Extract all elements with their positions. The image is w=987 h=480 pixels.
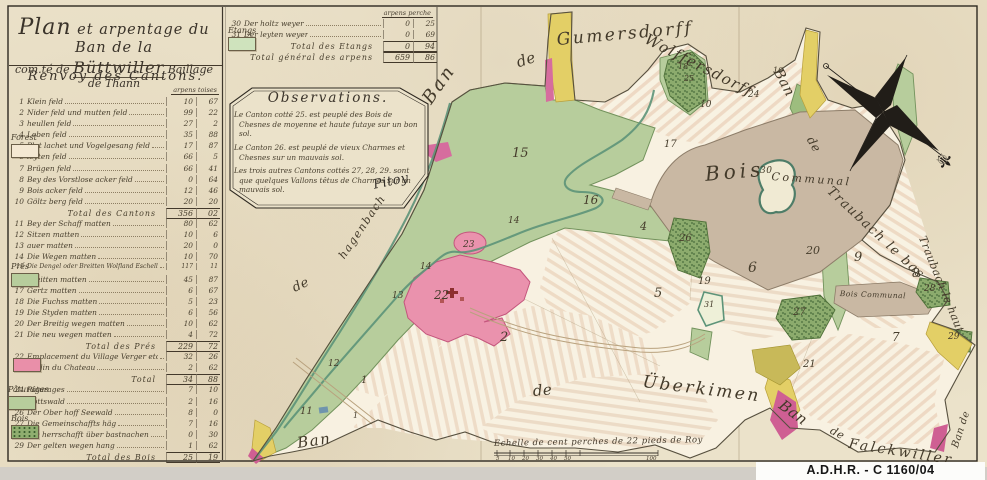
canton-number: 10 [9,197,24,206]
parcel-number: 21 [803,359,816,370]
etang-label: Total des Etangs [291,42,373,51]
canton-arpens: 4 [166,330,196,339]
canton-number: 7 [9,164,24,173]
leader-dots [113,225,164,226]
parcel-number: 22 [434,288,449,302]
scale-tick-label: 10 [508,456,515,462]
scale-tick-label: 20 [522,456,529,462]
canton-toises: 62 [196,219,220,228]
canton-arpens: 7 [166,419,196,428]
canton-label: Sitzen matten [27,230,79,239]
parcel-number: 16 [583,193,598,207]
leader-dots [98,258,164,259]
divider [9,65,222,66]
scale-tick-label: 100 [646,456,657,462]
canton-row: 21 Die neu wegen matten 4 72 [9,330,220,341]
canton-arpens: 356 [166,208,196,219]
canton-toises: 0 [196,241,220,250]
canton-row: 13 auer matten 20 0 [9,241,220,252]
canton-label: heullen feld [27,119,71,128]
canton-label: Die Styden matten [27,308,97,317]
canton-row: 19 Die Styden matten 6 56 [9,308,220,319]
parcel-number: 15 [512,146,529,161]
leader-dots [67,403,164,404]
leader-dots [73,170,164,171]
parcel-number: 9 [854,250,862,265]
canton-arpens: 229 [166,341,196,352]
category-item: Prés [11,262,39,287]
canton-row: 8 Bey des Vorstlose acker feld 0 64 [9,175,220,186]
canton-row: 4 Leben feld 35 88 [9,130,220,141]
canton-arpens: 0 [166,175,196,184]
canton-toises: 30 [196,430,220,439]
canton-arpens: 2 [166,397,196,406]
canton-toises: 5 [196,152,220,161]
canton-row: 17 Gertz matten 6 67 [9,286,220,297]
canton-row: 14 Die Wegen matten 10 70 [9,252,220,263]
canton-toises: 56 [196,308,220,317]
canton-number: 14 [9,252,24,261]
parcel-number: 27 [793,307,806,318]
color-swatch [11,144,39,158]
leader-dots [79,292,164,293]
map-label: de [532,380,553,400]
canton-number: 12 [9,230,24,239]
canton-arpens: 80 [166,219,196,228]
parcel-number: 10 [773,66,783,75]
canton-label: Total des Cantons [68,209,156,218]
scale-tick-label: 5 [496,456,500,462]
leader-dots [85,192,164,193]
canton-toises: 62 [196,363,220,372]
parcel-number: 20 [806,244,820,257]
canton-arpens: 117 [166,263,196,270]
observation-paragraph: Le Canton 26. est peuplé de vieux Charme… [234,143,422,162]
etang-number: 30 [226,19,241,28]
etang-row: 31 Der leyten weyer 0 69 [226,30,437,41]
canton-arpens: 10 [166,230,196,239]
scale-tick-label: 40 [550,456,557,462]
etang-perches: 69 [413,30,437,39]
canton-row: 18 Die Fuchss matten 5 23 [9,297,220,308]
canton-row: 28 Die herrschafft über bastnachen 0 30 [9,430,220,441]
canton-label: Brügen feld [27,164,71,173]
leader-dots [97,369,164,370]
canton-number: 2 [9,108,24,117]
etang-label: Der holtz weyer [244,19,304,28]
canton-arpens: 12 [166,186,196,195]
canton-toises: 88 [196,130,220,139]
category-item: Pâturages [8,385,49,410]
fleur-de-lis-icon: ⚜ [927,144,959,175]
etang-number: 31 [226,30,241,39]
leader-dots [127,325,164,326]
canton-arpens: 5 [166,297,196,306]
canton-label: Bey der Schaff matten [27,219,111,228]
category-item: Bois [11,414,39,439]
parcel-number: 13 [392,291,403,301]
canton-toises: 87 [196,141,220,150]
canton-row: 10 Göltz berg feld 20 20 [9,197,220,208]
canton-arpens: 32 [166,352,196,361]
canton-arpens: 1 [166,441,196,450]
canton-arpens: 8 [166,408,196,417]
canton-number: 18 [9,297,24,306]
etang-arpens: 0 [383,30,413,39]
parcel-number: 18 [678,62,688,71]
canton-toises: 67 [196,97,220,106]
canton-arpens: 45 [166,275,196,284]
color-swatch [11,425,39,439]
canton-label: Die Fuchss matten [27,297,97,306]
etang-perches: 94 [413,41,437,52]
leader-dots [151,436,164,437]
canton-number: 9 [9,186,24,195]
canton-label: Der Breitig wegen matten [27,319,125,328]
parcel-number: 8 [912,266,920,280]
canton-number: 19 [9,308,24,317]
canton-toises: 16 [196,419,220,428]
map-label: Bois [704,157,765,186]
leader-dots [81,236,164,237]
canton-number: 3 [9,119,24,128]
category-item: Forest [11,133,39,158]
parcel-number: 24 [748,90,759,100]
category-label: Forest [11,133,37,142]
canton-label: Nider feld und mutten feld [27,108,127,117]
title-initial: Plan [18,15,71,40]
parcel-number: 26 [679,233,692,244]
leader-dots [85,203,164,204]
canton-row: Total des Cantons 356 02 [9,208,220,219]
leader-dots [135,181,164,182]
parcel-number: 12 [328,359,339,369]
parcel-number: 1 [361,375,367,386]
canton-arpens: 27 [166,119,196,128]
map-label: 30 [760,166,772,176]
canton-toises: 11 [196,263,220,270]
canton-arpens: 6 [166,286,196,295]
parcel-number: 11 [300,406,313,417]
parcel-number: 14 [508,216,519,226]
canton-number: 1 [9,97,24,106]
etang-perches: 86 [413,52,437,63]
leader-dots [306,25,381,26]
leader-dots [117,447,164,448]
canton-toises: 72 [196,341,220,352]
etang-label: Der leyten weyer [244,30,308,39]
parchment-sheet: ⚜ Plan et arpentage du Ban de la com.té … [0,0,987,467]
parcel-number: 19 [698,276,711,287]
canton-arpens: 25 [166,452,196,463]
etangs-table: arpens perche 30 Der holtz weyer 0 25 31… [226,9,437,63]
canton-number: 20 [9,319,24,328]
leader-dots [160,267,164,268]
canton-label: auer matten [27,241,73,250]
category-label: Prés [11,262,29,271]
small-pond-mark [319,406,329,413]
canton-number: 8 [9,175,24,184]
canton-toises: 62 [196,319,220,328]
parcel-number: 7 [892,330,900,344]
observation-paragraph: Le Canton cotté 25. est peuplé des Bois … [234,110,422,139]
canton-toises: 2 [196,119,220,128]
scale-bar [494,450,658,456]
canton-label: Die Dengel oder Breitten Wolfland Eschel… [27,263,158,270]
etangs-column-header: arpens perche [382,9,433,18]
leader-dots [160,358,164,359]
parcel-number: 5 [654,286,662,301]
canton-row: Total 34 88 [9,374,220,385]
renvoy-heading: Renvoy des Cantons. [9,69,222,84]
canton-toises: 10 [196,385,220,394]
etang-row: 30 Der holtz weyer 0 25 [226,19,437,30]
canton-toises: 16 [196,397,220,406]
canton-row: 1 Klein feld 10 67 [9,97,220,108]
category-label: Bois [11,414,28,423]
etang-label: Total général des arpens [250,53,373,62]
canton-toises: 23 [196,297,220,306]
canton-row: 20 Der Breitig wegen matten 10 62 [9,319,220,330]
canton-toises: 87 [196,275,220,284]
parcel-number: 17 [664,139,677,150]
parcel-number: 2 [500,330,508,345]
canton-toises: 88 [196,374,220,385]
leader-dots [67,391,164,392]
etang-arpens: 659 [383,52,413,63]
canton-toises: 62 [196,441,220,450]
canton-toises: 6 [196,230,220,239]
etangs-rows: 30 Der holtz weyer 0 25 31 Der leyten we… [226,19,437,63]
canton-number: 21 [9,330,24,339]
canton-toises: 20 [196,197,220,206]
canton-toises: 0 [196,408,220,417]
canton-arpens: 35 [166,130,196,139]
canton-row: 16 Breitten matten 45 87 [9,275,220,286]
leader-dots [152,147,164,148]
leader-dots [115,414,164,415]
leader-dots [310,36,381,37]
canton-label: Total des Prés [86,342,156,351]
canton-row: 15 Die Dengel oder Breitten Wolfland Esc… [9,263,220,274]
canton-toises: 22 [196,108,220,117]
archive-reference-label: A.D.H.R. - C 1160/04 [756,462,985,480]
leader-dots [114,336,164,337]
parcel-number: 14 [420,262,431,272]
canton-label: Göltz berg feld [27,197,83,206]
canton-arpens: 99 [166,108,196,117]
etang-arpens: 0 [383,19,413,28]
etang-row: Total général des arpens 659 86 [226,52,437,63]
canton-row: 11 Bey der Schaff matten 80 62 [9,219,220,230]
canton-toises: 02 [196,208,220,219]
canton-label: Klein feld [27,97,63,106]
canton-arpens: 34 [166,374,196,385]
leader-dots [99,314,164,315]
canton-label: Plat lachet und Vogelgesang feld [27,141,150,150]
color-swatch [11,273,39,287]
canton-label: Total [131,375,156,384]
canton-label: Bey des Vorstlose acker feld [27,175,133,184]
color-swatch [13,358,41,372]
leader-dots [69,158,164,159]
leader-dots [69,136,164,137]
canton-label: Emplacement du Village Verger etc. [27,352,158,361]
canton-arpens: 20 [166,241,196,250]
canton-row: 12 Sitzen matten 10 6 [9,230,220,241]
title-line1-text: et arpentage du Ban de la [72,22,210,56]
renvoy-column-header: arpens toises [171,86,219,95]
canton-arpens: 2 [166,363,196,372]
leader-dots [89,281,164,282]
parcel-number: 29 [948,332,959,342]
parcel-number: 1 [353,411,358,420]
canton-arpens: 10 [166,252,196,261]
canton-row: 5 Plat lachet und Vogelgesang feld 17 87 [9,141,220,152]
canton-row: 7 Brügen feld 66 41 [9,164,220,175]
scanned-map-sheet: ⚜ Plan et arpentage du Ban de la com.té … [0,0,987,480]
canton-toises: 26 [196,352,220,361]
canton-label: Die herrschafft über bastnachen [27,430,149,439]
category-label: Pâturages [8,385,49,394]
canton-row: 6 leyten feld 66 5 [9,152,220,163]
canton-arpens: 7 [166,385,196,394]
canton-toises: 19 [196,452,220,463]
canton-row: Total des Prés 229 72 [9,341,220,352]
parcel-number: 6 [748,260,757,276]
canton-row: 2 Nider feld und mutten feld 99 22 [9,108,220,119]
canton-arpens: 10 [166,319,196,328]
canton-label: Total des Bois [86,453,156,462]
canton-toises: 64 [196,175,220,184]
scale-tick-label: 30 [536,456,543,462]
parcel-number: 10 [700,100,711,110]
canton-label: Bois acker feld [27,186,83,195]
parcel-number: 23 [463,240,474,250]
canton-row: 27 Die Gemeinschaffts häg 7 16 [9,419,220,430]
leader-dots [99,303,164,304]
canton-arpens: 0 [166,430,196,439]
scale-tick-label: 50 [564,456,571,462]
canton-row: 29 Der gelten wegen hang 1 62 [9,441,220,452]
canton-arpens: 20 [166,197,196,206]
parcel-number: 28 [924,284,935,294]
leader-dots [73,125,164,126]
canton-number: 13 [9,241,24,250]
leader-dots [65,103,164,104]
canton-arpens: 66 [166,164,196,173]
canton-label: Die Gemeinschaffts häg [27,419,116,428]
canton-arpens: 6 [166,308,196,317]
parcel-number: 31 [704,300,714,309]
color-swatch [8,396,36,410]
observations-title: Observations. [234,90,422,106]
parcel-number: 4 [640,220,647,233]
canton-toises: 72 [196,330,220,339]
category-item [13,356,41,372]
leader-dots [129,114,164,115]
canton-number: 11 [9,219,24,228]
canton-arpens: 66 [166,152,196,161]
canton-toises: 67 [196,286,220,295]
canton-label: Die Wegen matten [27,252,96,261]
canton-toises: 41 [196,164,220,173]
etang-row: Total des Etangs 0 94 [226,41,437,52]
canton-arpens: 10 [166,97,196,106]
canton-label: Der gelten wegen hang [27,441,115,450]
etang-arpens: 0 [383,41,413,52]
parcel-number: 25 [684,74,694,83]
leader-dots [75,247,164,248]
canton-label: Die neu wegen matten [27,330,112,339]
etang-perches: 25 [413,19,437,28]
canton-arpens: 17 [166,141,196,150]
canton-row: 3 heullen feld 27 2 [9,119,220,130]
canton-number: 29 [9,441,24,450]
canton-toises: 70 [196,252,220,261]
leader-dots [118,425,164,426]
canton-row: 9 Bois acker feld 12 46 [9,186,220,197]
canton-toises: 46 [196,186,220,195]
canton-row: Total des Bois 25 19 [9,452,220,463]
